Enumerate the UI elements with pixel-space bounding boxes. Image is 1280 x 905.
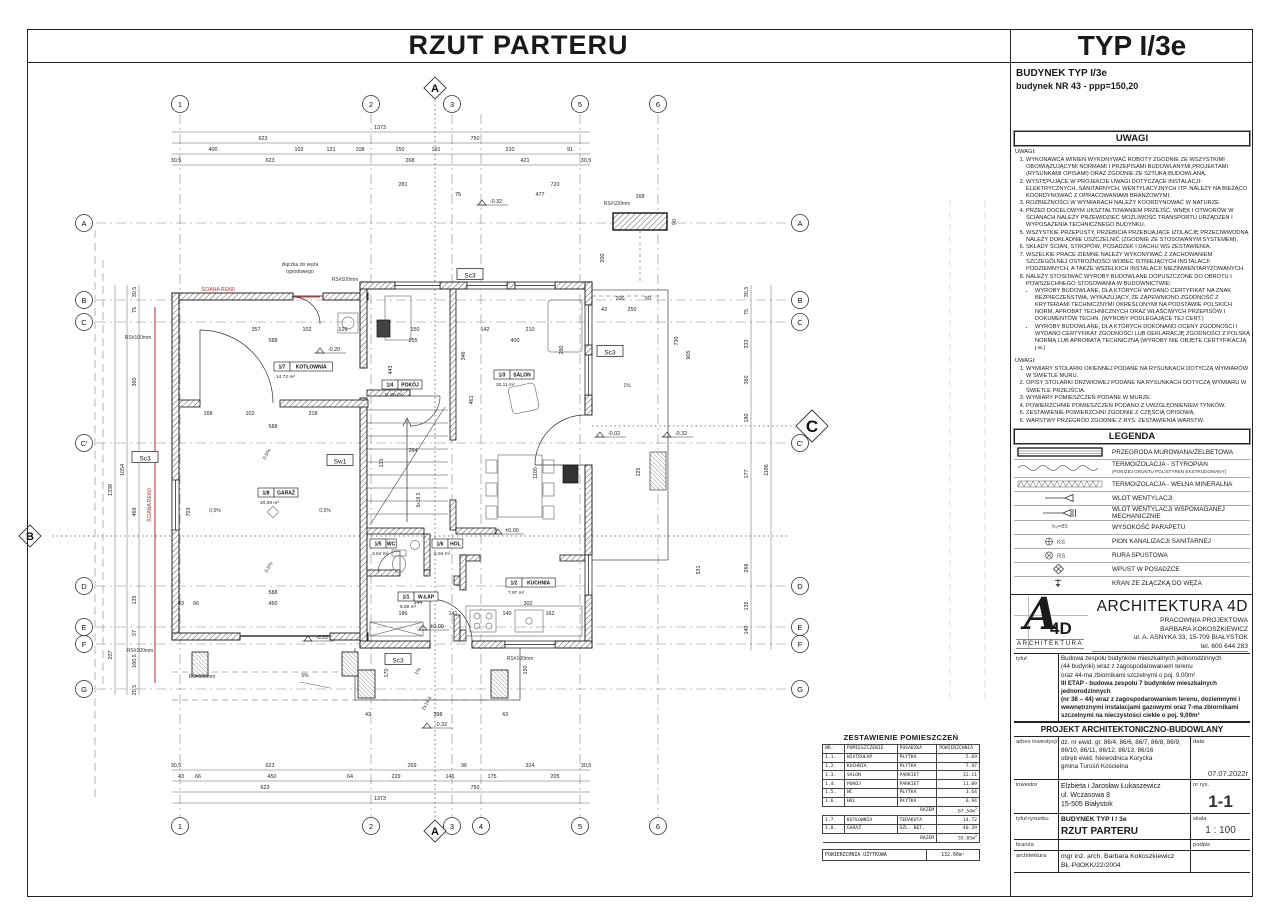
legend-row: TERMOIZOLACJA - STYROPIAN (PONIŻEJ GRUNT…: [1014, 460, 1250, 478]
table-cell: HOL: [844, 797, 897, 806]
table-cell: POSADZKA: [897, 745, 937, 754]
architektura-label: architektura: [1014, 851, 1058, 872]
data-label: data: [1193, 739, 1248, 745]
firm-logo: A 4D ARCHITEKTURA: [1014, 597, 1092, 653]
plan-title: RZUT PARTERU: [27, 29, 1010, 63]
branza-label: branża: [1014, 840, 1058, 850]
legend-label: WLOT WENTYLACJI: [1106, 495, 1173, 502]
uwagi-item: NALEŻY STOSOWAĆ WYROBY BUDOWLANE DOPUSZC…: [1026, 274, 1251, 352]
tytul-label: tytuł: [1014, 654, 1058, 722]
building-info: BUDYNEK TYP I/3e budynek NR 43 - ppp=150…: [1011, 63, 1253, 131]
legend-row: KRAN ZE ZŁĄCZKĄ DO WĘŻA: [1014, 577, 1250, 590]
room-schedule-title: ZESTAWIENIE POMIESZCZEŃ: [822, 733, 980, 742]
legend-label: RURA SPUSTOWA: [1106, 552, 1168, 559]
wall-hatch-icon: [1014, 447, 1106, 457]
svg-text:KS: KS: [1057, 540, 1065, 546]
drawing-sheet: { "sheet": { "plan_title": "RZUT PARTERU…: [0, 0, 1280, 905]
hose-tap-icon: [1014, 578, 1106, 589]
table-row: 1.5.WCPŁYTKA3.64: [823, 788, 980, 797]
usable-area-value: 132.66m²: [927, 850, 979, 860]
table-row: 1.2.KUCHNIAPŁYTKA7.97: [823, 762, 980, 771]
legend-row: KS PION KANALIZACJI SANITARNEJ: [1014, 535, 1250, 549]
table-row: 1.3.SALONPARKIET32.11: [823, 771, 980, 780]
uwagi-list-2: UWAGI: WYMIARY STOLARKI OKIENNEJ PODANE …: [1011, 355, 1253, 425]
legend-label: TERMOIZOLACJA - STYROPIAN: [1112, 461, 1208, 468]
table-cell: 14.72: [937, 816, 980, 825]
data-cell: data 07.07.2022r: [1190, 737, 1250, 779]
room-schedule: ZESTAWIENIE POMIESZCZEŃ NR.POMIESZCZENIE…: [822, 733, 980, 861]
uwagi-header: UWAGI: [1014, 131, 1250, 146]
plan-title-text: RZUT PARTERU: [409, 30, 629, 61]
legend-row: TERMOIZOLACJA - WEŁNA MINERALNA: [1014, 478, 1250, 492]
nr-rys-cell: nr rys. 1-1: [1190, 780, 1250, 813]
table-cell: RAZEM: [823, 833, 937, 843]
table-cell: 1.7.: [823, 816, 845, 825]
legend-row: hₚ=85 WYSOKOŚĆ PARAPETU: [1014, 521, 1250, 535]
table-cell: 32.11: [937, 771, 980, 780]
table-cell: PŁYTKA: [897, 753, 937, 762]
inwestor-label: inwestor: [1014, 780, 1058, 813]
table-row: 1.6.HOLPŁYTKA6.94: [823, 797, 980, 806]
uwagi-item: WARSTWY PRZEGRÓD ZGODNIE Z RYS. ZESTAWIE…: [1026, 418, 1251, 425]
mineral-wool-hatch-icon: [1014, 479, 1106, 489]
legend-row: WPUST W POSADZCE: [1014, 563, 1250, 577]
logo-4d: 4D: [1050, 619, 1072, 639]
table-cell: KOTŁOWNIA: [844, 816, 897, 825]
firm-line3: ul. A. ASNYKA 33, 15-709 BIAŁYSTOK: [1092, 634, 1248, 643]
sill-height-icon: hₚ=85: [1014, 524, 1106, 530]
table-cell: WC: [844, 788, 897, 797]
room-schedule-table: NR.POMIESZCZENIEPOSADZKAPOWIERZCHNIA1.1.…: [822, 744, 980, 843]
usable-area-bar: POWIERZCHNIA UŻYTKOWA 132.66m²: [822, 849, 980, 861]
firm-block: A 4D ARCHITEKTURA ARCHITEKTURA 4D PRACOW…: [1011, 594, 1253, 653]
legend: PRZEGRODA MUROWANA/ŻELBETOWA TERMOIZOLAC…: [1014, 446, 1250, 590]
legend-label: TERMOIZOLACJA - WEŁNA MINERALNA: [1106, 481, 1232, 488]
building-info-line1: BUDYNEK TYP I/3e: [1016, 68, 1253, 81]
vent-inlet-mech-icon: [1014, 508, 1106, 518]
table-cell: WIATROŁAP: [844, 753, 897, 762]
legend-label: PRZEGRODA MUROWANA/ŻELBETOWA: [1106, 449, 1233, 456]
table-row: 1.1.WIATROŁAPPŁYTKA5.69: [823, 753, 980, 762]
type-title-text: TYP I/3e: [1078, 30, 1186, 62]
usable-area-label: POWIERZCHNIA UŻYTKOWA: [823, 850, 927, 860]
table-cell: 40.39: [937, 824, 980, 833]
table-cell: PARKIET: [897, 771, 937, 780]
table-cell: 6.94: [937, 797, 980, 806]
skala-value: 1 : 100: [1193, 825, 1248, 836]
uwagi-item: WYMIARY POMIESZCZEŃ PODANE W MURZE.: [1026, 395, 1251, 402]
vent-inlet-icon: [1014, 493, 1106, 503]
table-cell: RAZEM: [823, 806, 937, 816]
firm-name: ARCHITEKTURA 4D: [1092, 597, 1248, 617]
project-header: PROJEKT ARCHITEKTONICZNO-BUDOWLANY: [1014, 722, 1250, 737]
table-row: 1.4.POKÓJPARKIET11.89: [823, 780, 980, 789]
architekt-text: mgr inż. arch. Barbara Kokoszkiewicz BŁ-…: [1058, 851, 1190, 872]
razem-row: RAZEM67.54m2: [823, 806, 980, 816]
legend-row: WLOT WENTYLACJI: [1014, 492, 1250, 506]
nr-rys-label: nr rys.: [1193, 782, 1248, 788]
uwagi-item: WSZYSTKIE PRZEPUSTY, PRZEBICIA PRZEBIJAJ…: [1026, 230, 1251, 244]
type-title: TYP I/3e: [1010, 29, 1253, 63]
firm-line2: BARBARA KOKOSZKIEWICZ: [1092, 626, 1248, 635]
table-cell: TERAKOTA: [897, 816, 937, 825]
svg-text:RS: RS: [1057, 554, 1065, 560]
table-cell: 7.97: [937, 762, 980, 771]
legend-row: WLOT WENTYLACJI WSPOMAGANEJ MECHANICZNIE: [1014, 506, 1250, 521]
inwestor-text: Elżbieta i Jarosław Łukaszewicz ul. Wcza…: [1058, 780, 1190, 813]
table-cell: POMIESZCZENIE: [844, 745, 897, 754]
legend-label: KRAN ZE ZŁĄCZKĄ DO WĘŻA: [1106, 580, 1202, 587]
uwagi2-intro: UWAGI:: [1015, 358, 1251, 365]
firm-line4: tel. 600 644 283: [1092, 643, 1248, 653]
table-cell: 1.5.: [823, 788, 845, 797]
building-info-line2: budynek NR 43 - ppp=150,20: [1016, 81, 1253, 92]
uwagi-item: WSZELKIE PRACE ZIEMNE NALEŻY WYKONYWAĆ Z…: [1026, 252, 1251, 273]
razem-row: RAZEM55.85m2: [823, 833, 980, 843]
sanitary-stack-icon: KS: [1014, 536, 1106, 547]
uwagi-item: WYSTĘPUJĄCE W PROJEKCIE UWAGI DOTYCZĄCE …: [1026, 179, 1251, 200]
table-cell: SZL. BET.: [897, 824, 937, 833]
skala-cell: skala 1 : 100: [1190, 814, 1250, 839]
table-cell: 1.1.: [823, 753, 845, 762]
table-cell: 55.85m2: [937, 833, 980, 843]
table-cell: PŁYTKA: [897, 762, 937, 771]
table-cell: PŁYTKA: [897, 788, 937, 797]
table-cell: 67.54m2: [937, 806, 980, 816]
table-cell: PARKIET: [897, 780, 937, 789]
legend-row: RS RURA SPUSTOWA: [1014, 549, 1250, 563]
uwagi-list-1: UWAGI: WYKONAWCA WINIEN WYKONYWAĆ ROBOTY…: [1011, 146, 1253, 352]
legend-label: WLOT WENTYLACJI WSPOMAGANEJ MECHANICZNIE: [1106, 506, 1250, 520]
legend-sublabel: (PONIŻEJ GRUNTU POLISTYREN EKSTRUDOWANY): [1112, 469, 1226, 474]
tytul-rysunku-label: tytuł rysunku: [1014, 814, 1058, 839]
uwagi-item: POWIERZCHNIE POMIESZCZEŃ PODANO Z UWZGLĘ…: [1026, 403, 1251, 410]
skala-label: skala: [1193, 816, 1248, 822]
legend-label: WYSOKOŚĆ PARAPETU: [1106, 524, 1185, 531]
table-cell: 5.69: [937, 753, 980, 762]
uwagi-item: WYMIARY STOLARKI OKIENNEJ PODANE NA RYSU…: [1026, 366, 1251, 380]
legend-header: LEGENDA: [1014, 429, 1250, 444]
table-cell: 1.2.: [823, 762, 845, 771]
uwagi-item: OPISY STOLARKI DRZWIOWEJ PODANE NA RYSUN…: [1026, 380, 1251, 394]
title-block: tytuł Budowa zespołu budynków mieszkalny…: [1014, 653, 1250, 873]
uwagi-item: SKŁADY ŚCIAN, STROPÓW, POSADZEK I DACHU …: [1026, 244, 1251, 251]
downpipe-icon: RS: [1014, 550, 1106, 561]
data-value: 07.07.2022r: [1193, 769, 1248, 778]
floor-drain-icon: [1014, 564, 1106, 574]
table-row: 1.8.GARAŻSZL. BET.40.39: [823, 824, 980, 833]
styrofoam-wave-icon: [1014, 463, 1106, 473]
table-cell: 11.89: [937, 780, 980, 789]
firm-line1: PRACOWNIA PROJEKTOWA: [1092, 617, 1248, 626]
legend-row: PRZEGRODA MUROWANA/ŻELBETOWA: [1014, 446, 1250, 460]
nr-rys-value: 1-1: [1193, 792, 1248, 812]
table-cell: 1.4.: [823, 780, 845, 789]
table-cell: 1.8.: [823, 824, 845, 833]
uwagi-subitem: WYROBY BUDOWLANE, DLA KTÓRYCH DOKONANO O…: [1035, 324, 1251, 352]
tytul-text: Budowa zespołu budynków mieszkalnych jed…: [1058, 654, 1250, 722]
table-cell: 3.64: [937, 788, 980, 797]
right-panel: BUDYNEK TYP I/3e budynek NR 43 - ppp=150…: [1010, 63, 1253, 897]
podpis-label: podpis: [1190, 840, 1250, 850]
uwagi-item: ZESTAWIENIE POWIERZCHNI ZGODNIE Z CZĘŚCI…: [1026, 410, 1251, 417]
table-cell: POKÓJ: [844, 780, 897, 789]
table-cell: NR.: [823, 745, 845, 754]
firm-text: ARCHITEKTURA 4D PRACOWNIA PROJEKTOWA BAR…: [1092, 597, 1250, 653]
adres-label: adres inwestycji: [1014, 737, 1058, 779]
uwagi-item: ROZBIEŻNOŚCI W WYMIARACH NALEŻY KOORDYNO…: [1026, 200, 1251, 207]
table-cell: KUCHNIA: [844, 762, 897, 771]
table-cell: POWIERZCHNIA: [937, 745, 980, 754]
table-cell: GARAŻ: [844, 824, 897, 833]
table-cell: 1.6.: [823, 797, 845, 806]
logo-subtext: ARCHITEKTURA: [1016, 639, 1084, 649]
table-header-row: NR.POMIESZCZENIEPOSADZKAPOWIERZCHNIA: [823, 745, 980, 754]
uwagi-subitem: WYROBY BUDOWLANE, DLA KTÓRYCH WYDANO CER…: [1035, 288, 1251, 323]
uwagi-item: WYKONAWCA WINIEN WYKONYWAĆ ROBOTY ZGODNI…: [1026, 157, 1251, 178]
uwagi-item: PRZED DOCELOWYM UKSZTAŁTOWANIEM PRZEJŚĆ,…: [1026, 208, 1251, 229]
table-cell: 1.3.: [823, 771, 845, 780]
table-cell: SALON: [844, 771, 897, 780]
adres-text: dz. nr ewid. gr. 86/4, 86/6, 86/7, 86/8,…: [1058, 737, 1190, 779]
table-cell: PŁYTKA: [897, 797, 937, 806]
legend-label: PION KANALIZACJI SANITARNEJ: [1106, 538, 1211, 545]
uwagi1-intro: UWAGI:: [1015, 149, 1251, 156]
legend-label: WPUST W POSADZCE: [1106, 566, 1180, 573]
table-row: 1.7.KOTŁOWNIATERAKOTA14.72: [823, 816, 980, 825]
tytul-rysunku-text: BUDYNEK TYP I / 3e RZUT PARTERU: [1058, 814, 1190, 839]
